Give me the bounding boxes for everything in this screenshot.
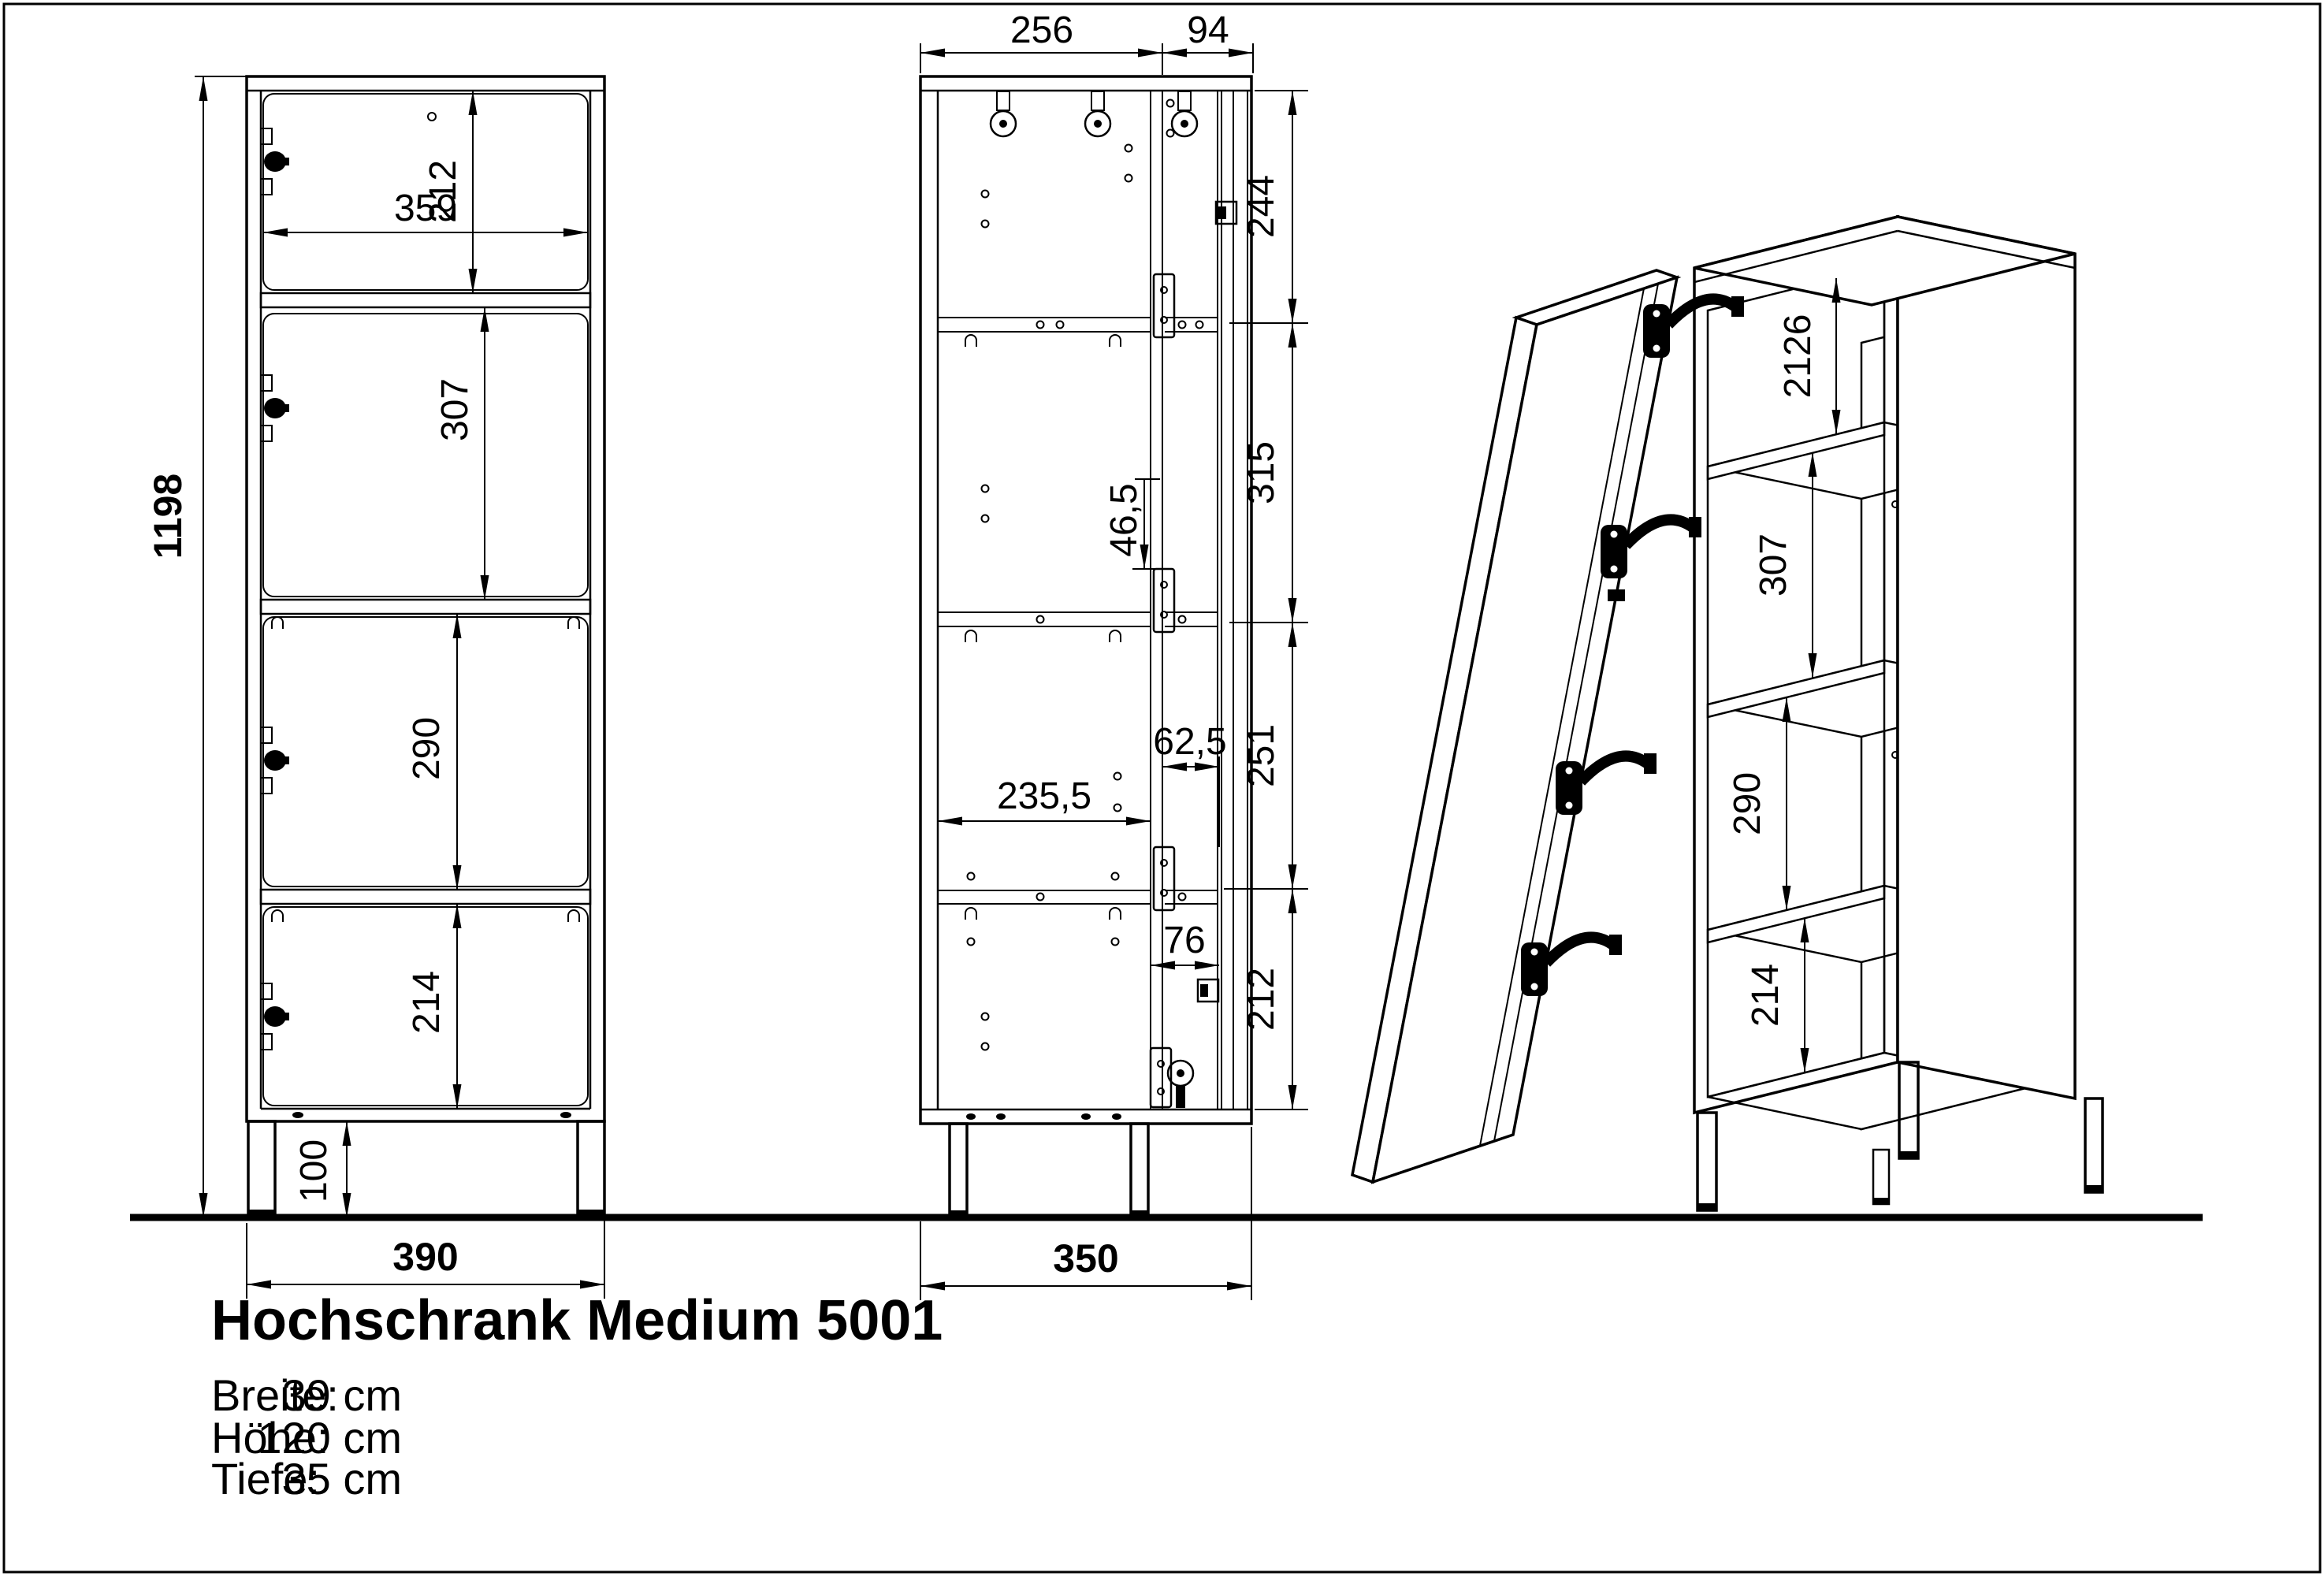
dim-iso-comp3: 290 (1727, 772, 1768, 835)
dim-hinge-inset: 62,5 (1153, 721, 1226, 763)
door-handle-fitting (1608, 589, 1625, 601)
dim-door-inset: 76 (1163, 920, 1205, 961)
dim-inner-depth: 235,5 (997, 775, 1091, 817)
iso-view: 2126 307 290 214 (1352, 217, 2103, 1210)
dim-comp4: 214 (406, 971, 448, 1034)
front-view: 1198 212 359 307 290 214 100 390 (146, 76, 604, 1299)
hinge-3d-icon (1601, 517, 1701, 578)
page-title: Hochschrank Medium 5001 (211, 1289, 943, 1352)
dim-inner-width: 359 (394, 188, 457, 229)
dim-depth-front: 94 (1187, 9, 1229, 51)
dim-iso-comp2: 307 (1753, 533, 1794, 597)
side-legs (950, 1124, 1148, 1217)
dim-comp2: 307 (434, 378, 476, 441)
side-view: 256 94 46,5 62,5 235,5 76 244 315 2 (920, 9, 1308, 1300)
dim-iso-comp4: 214 (1745, 964, 1787, 1027)
dim-shelf-inset: 46,5 (1103, 483, 1145, 556)
hinge-3d-icon (1556, 753, 1657, 815)
dim-leg-height: 100 (293, 1139, 335, 1202)
iso-door (1352, 270, 1677, 1182)
dim-total-depth: 350 (1053, 1236, 1118, 1280)
side-carcass (920, 76, 1251, 1124)
dim-total-width: 390 (392, 1235, 458, 1279)
dim-depth-back: 256 (1010, 9, 1073, 51)
dim-iso-comp1: 2126 (1777, 314, 1819, 399)
specs-table: Breite: 39 cm Höhe: 120 cm Tiefe: 35 cm (211, 1370, 402, 1504)
dim-total-height: 1198 (146, 474, 190, 559)
spec-value: 35 cm (282, 1454, 403, 1504)
dim-seg-top: 244 (1240, 175, 1282, 238)
dim-seg-lower: 251 (1240, 724, 1282, 787)
hinge-3d-icon (1521, 935, 1622, 996)
dim-seg-upper: 315 (1240, 441, 1282, 504)
technical-drawing-canvas: 1198 212 359 307 290 214 100 390 (0, 0, 2324, 1576)
dim-comp3: 290 (406, 717, 448, 780)
dim-seg-bottom: 212 (1240, 968, 1282, 1031)
